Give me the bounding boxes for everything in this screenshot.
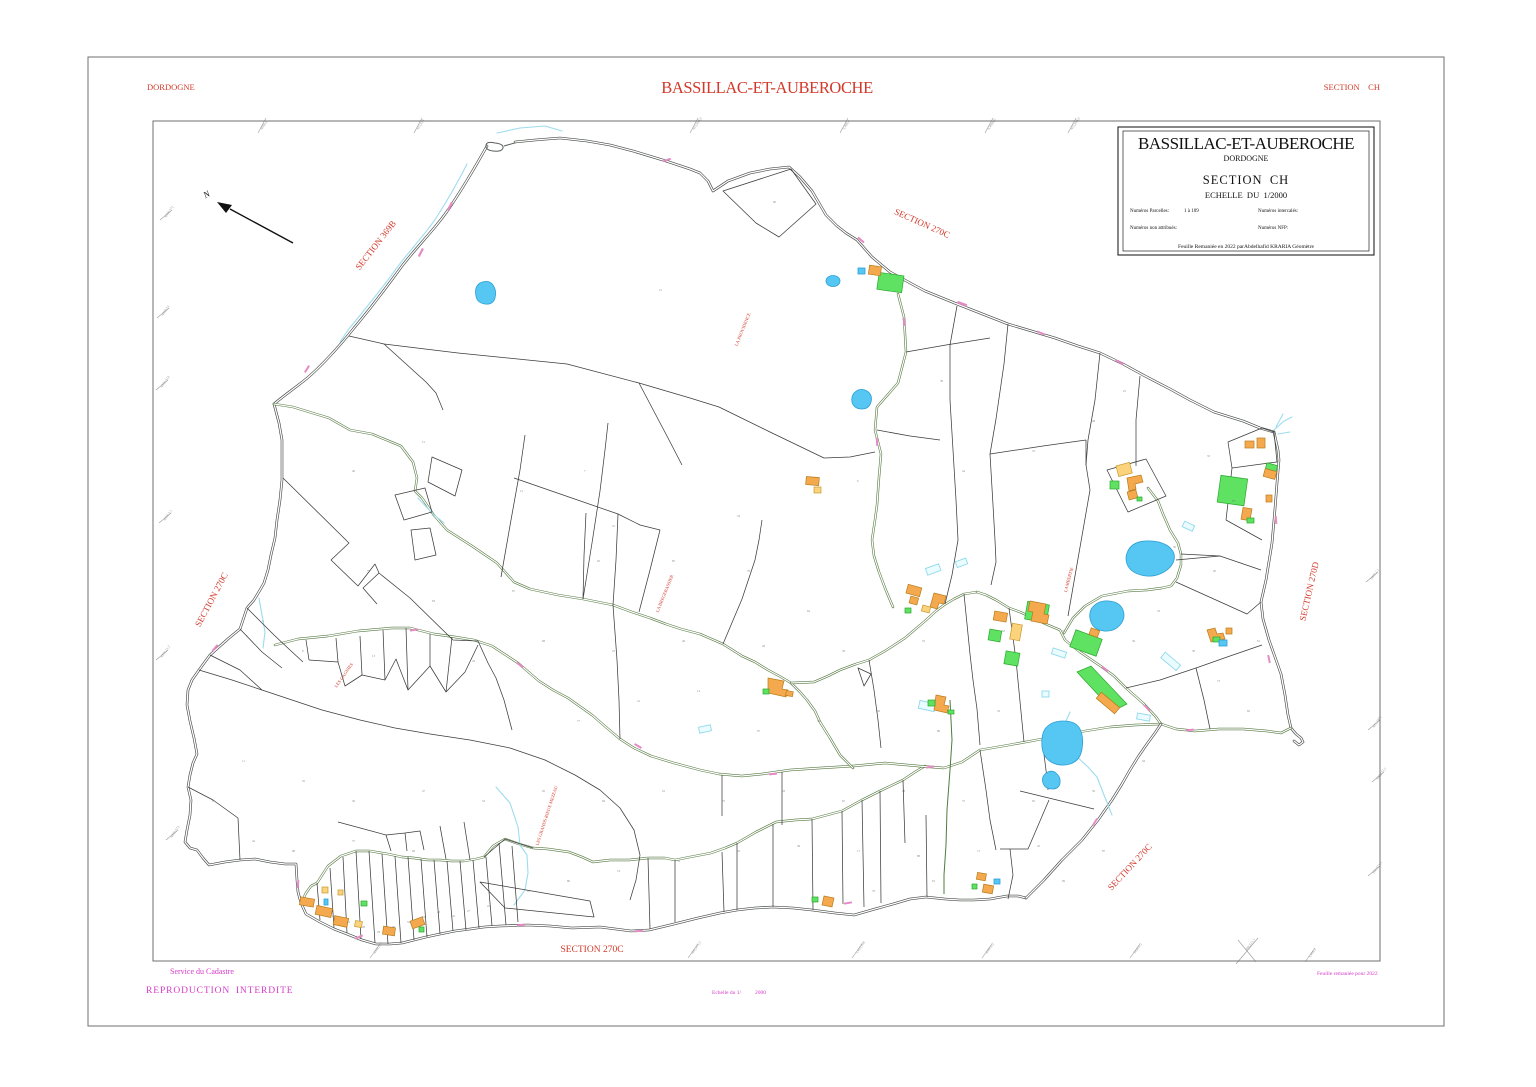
svg-text:51: 51 bbox=[677, 859, 681, 863]
svg-text:29: 29 bbox=[377, 930, 381, 934]
svg-text:36: 36 bbox=[392, 925, 396, 929]
svg-text:39: 39 bbox=[842, 649, 846, 653]
svg-text:13: 13 bbox=[372, 654, 376, 658]
svg-text:21: 21 bbox=[347, 920, 351, 924]
svg-text:52: 52 bbox=[407, 920, 411, 924]
svg-text:BASSILLAC-ET-AUBEROCHE: BASSILLAC-ET-AUBEROCHE bbox=[661, 78, 873, 97]
svg-text:61: 61 bbox=[1257, 639, 1261, 643]
svg-text:54: 54 bbox=[817, 719, 821, 723]
svg-text:82: 82 bbox=[1247, 709, 1251, 713]
svg-text:94: 94 bbox=[1142, 759, 1146, 763]
svg-text:48: 48 bbox=[1092, 419, 1096, 423]
svg-text:27: 27 bbox=[467, 909, 471, 913]
svg-text:62: 62 bbox=[737, 849, 741, 853]
svg-text:REPRODUCTION INTERDITE: REPRODUCTION INTERDITE bbox=[146, 986, 294, 996]
svg-text:53: 53 bbox=[1157, 609, 1161, 613]
svg-text:34: 34 bbox=[737, 514, 741, 518]
svg-text:17: 17 bbox=[857, 849, 861, 853]
svg-text:2000: 2000 bbox=[755, 990, 766, 996]
svg-text:12: 12 bbox=[422, 440, 426, 444]
svg-text:69: 69 bbox=[412, 849, 416, 853]
svg-text:25: 25 bbox=[1123, 389, 1127, 393]
svg-text:52: 52 bbox=[1032, 449, 1036, 453]
svg-text:38: 38 bbox=[940, 379, 944, 383]
svg-text:83: 83 bbox=[432, 599, 436, 603]
svg-text:SECTION 270C: SECTION 270C bbox=[560, 945, 623, 955]
svg-text:19: 19 bbox=[527, 889, 531, 893]
svg-text:28: 28 bbox=[362, 925, 366, 929]
svg-text:92: 92 bbox=[597, 559, 601, 563]
svg-text:Service du Cadastre: Service du Cadastre bbox=[170, 967, 234, 976]
svg-text:64: 64 bbox=[807, 609, 811, 613]
svg-text:65: 65 bbox=[842, 799, 846, 803]
svg-text:1 à 109: 1 à 109 bbox=[1184, 209, 1199, 214]
svg-text:41: 41 bbox=[637, 699, 641, 703]
svg-text:28: 28 bbox=[762, 644, 766, 648]
svg-text:66: 66 bbox=[877, 709, 881, 713]
svg-text:52: 52 bbox=[482, 799, 486, 803]
svg-text:73: 73 bbox=[1217, 679, 1221, 683]
svg-text:84: 84 bbox=[602, 799, 606, 803]
svg-text:44: 44 bbox=[962, 469, 966, 473]
svg-text:33: 33 bbox=[1207, 454, 1211, 458]
svg-text:89: 89 bbox=[937, 729, 941, 733]
svg-text:47: 47 bbox=[422, 789, 426, 793]
svg-text:44: 44 bbox=[252, 839, 256, 843]
svg-text:20: 20 bbox=[1213, 569, 1217, 573]
svg-text:78: 78 bbox=[747, 569, 751, 573]
svg-text:49: 49 bbox=[797, 844, 801, 848]
svg-text:DORDOGNE: DORDOGNE bbox=[147, 82, 195, 92]
svg-text:36: 36 bbox=[1132, 639, 1136, 643]
svg-text:15: 15 bbox=[520, 489, 524, 493]
svg-text:26: 26 bbox=[542, 789, 546, 793]
svg-text:40: 40 bbox=[352, 469, 356, 473]
svg-text:97: 97 bbox=[757, 729, 761, 733]
svg-text:71: 71 bbox=[977, 849, 981, 853]
svg-text:SECTION CH: SECTION CH bbox=[1203, 173, 1289, 187]
svg-text:23: 23 bbox=[437, 910, 441, 914]
svg-text:Numéros intercalés:: Numéros intercalés: bbox=[1258, 209, 1298, 214]
svg-text:21: 21 bbox=[659, 288, 663, 292]
svg-text:23: 23 bbox=[612, 649, 616, 653]
svg-text:30: 30 bbox=[1173, 545, 1177, 549]
svg-text:56: 56 bbox=[352, 799, 356, 803]
svg-text:93: 93 bbox=[782, 789, 786, 793]
svg-text:72: 72 bbox=[1062, 629, 1066, 633]
svg-text:43: 43 bbox=[472, 659, 476, 663]
svg-text:76: 76 bbox=[872, 889, 876, 893]
svg-text:Feuille remaniée pour 2022: Feuille remaniée pour 2022 bbox=[1317, 971, 1378, 977]
svg-text:18: 18 bbox=[902, 789, 906, 793]
svg-text:45: 45 bbox=[1037, 844, 1041, 848]
svg-text:79: 79 bbox=[367, 569, 371, 573]
svg-text:63: 63 bbox=[1002, 629, 1006, 633]
svg-text:68: 68 bbox=[542, 639, 546, 643]
svg-text:35: 35 bbox=[302, 779, 306, 783]
svg-text:37: 37 bbox=[962, 799, 966, 803]
svg-text:95: 95 bbox=[1032, 799, 1036, 803]
svg-text:77: 77 bbox=[577, 719, 581, 723]
svg-text:46: 46 bbox=[682, 639, 686, 643]
svg-text:55: 55 bbox=[922, 639, 926, 643]
svg-text:ECHELLE DU 1/2000: ECHELLE DU 1/2000 bbox=[1205, 190, 1287, 200]
svg-text:Numéros Parcelles:: Numéros Parcelles: bbox=[1130, 209, 1169, 214]
svg-text:DORDOGNE: DORDOGNE bbox=[1224, 154, 1269, 163]
svg-text:74: 74 bbox=[617, 869, 621, 873]
svg-text:Numéros NFP:: Numéros NFP: bbox=[1258, 226, 1288, 231]
svg-text:57: 57 bbox=[352, 839, 356, 843]
svg-text:Echelle du 1/: Echelle du 1/ bbox=[712, 990, 741, 996]
svg-text:22: 22 bbox=[487, 904, 491, 908]
svg-text:98: 98 bbox=[292, 849, 296, 853]
svg-text:Feuille Remaniée en 2022 parAb: Feuille Remaniée en 2022 parAbdelhafid K… bbox=[1178, 243, 1314, 250]
svg-text:75: 75 bbox=[722, 799, 726, 803]
svg-text:SECTION CH: SECTION CH bbox=[1324, 82, 1380, 92]
svg-text:BASSILLAC-ET-AUBEROCHE: BASSILLAC-ET-AUBEROCHE bbox=[1138, 134, 1354, 153]
svg-text:87: 87 bbox=[1102, 849, 1106, 853]
svg-text:86: 86 bbox=[567, 879, 571, 883]
svg-text:99: 99 bbox=[1062, 879, 1066, 883]
svg-text:Numéros non attribués:: Numéros non attribués: bbox=[1130, 226, 1177, 231]
svg-text:32: 32 bbox=[997, 709, 1001, 713]
svg-text:42: 42 bbox=[452, 914, 456, 918]
svg-text:88: 88 bbox=[917, 854, 921, 858]
svg-text:31: 31 bbox=[612, 524, 616, 528]
svg-text:90: 90 bbox=[773, 200, 777, 204]
svg-text:67: 67 bbox=[512, 589, 516, 593]
svg-text:24: 24 bbox=[332, 914, 336, 918]
svg-text:57: 57 bbox=[1232, 499, 1236, 503]
svg-text:16: 16 bbox=[662, 789, 666, 793]
svg-text:59: 59 bbox=[1092, 789, 1096, 793]
svg-text:58: 58 bbox=[1192, 649, 1196, 653]
svg-text:11: 11 bbox=[242, 759, 245, 763]
svg-text:81: 81 bbox=[932, 879, 936, 883]
svg-text:33: 33 bbox=[422, 915, 426, 919]
svg-text:14: 14 bbox=[697, 689, 701, 693]
svg-text:85: 85 bbox=[672, 559, 676, 563]
